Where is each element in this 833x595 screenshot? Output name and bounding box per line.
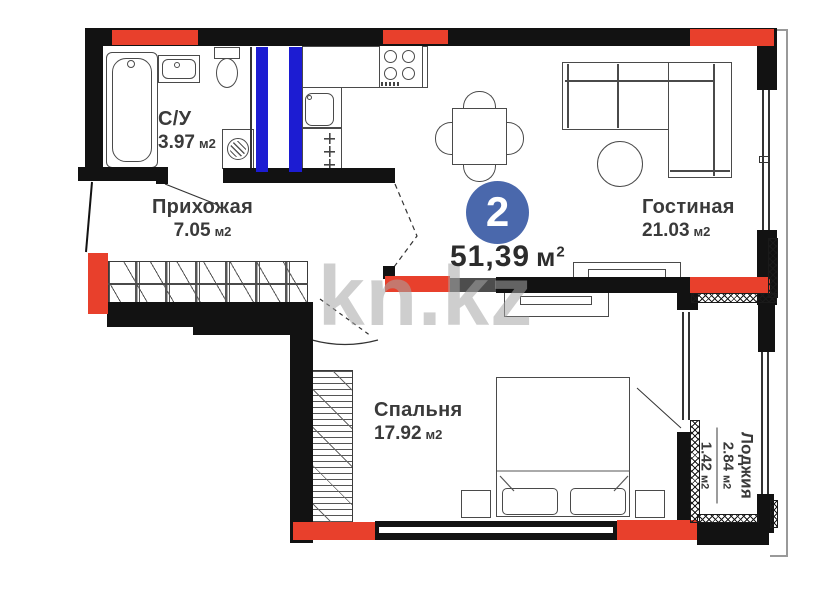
plumbing-riser-2 [289, 47, 302, 172]
hatch-right-bottom [770, 500, 778, 528]
total-area-unit-letter: м [536, 242, 556, 272]
red-accent-bedroom-bottom-right [617, 520, 697, 540]
wall-loggia-right-upper [758, 302, 775, 352]
room-area-reduced: 1.42м2 [698, 400, 715, 532]
total-area-value: 51,39 [450, 240, 530, 273]
floor-plan: kn.kz С/У 3.97м2 Прихожая 7.05м2 Гостина… [0, 0, 833, 595]
red-accent-top-right [690, 29, 774, 46]
room-area: 17.92м2 [374, 423, 463, 444]
total-area-label: 51,39м2 [450, 240, 566, 274]
plumbing-riser-1 [256, 47, 268, 172]
room-area-unit: м2 [199, 136, 216, 151]
total-area-unit-sup: 2 [556, 243, 565, 260]
door-jamb-bathroom [156, 170, 168, 184]
room-area-value: 2.84 [720, 442, 737, 471]
window-bedroom-loggia-line1 [682, 312, 684, 420]
red-accent-loggia-top [690, 277, 770, 293]
room-name: Прихожая [125, 196, 280, 218]
room-area: 7.05м2 [125, 220, 280, 241]
wall-bathroom-kitchen-partition [250, 47, 252, 168]
pointer-line-loggia-door [637, 388, 681, 428]
window-bedroom-bottom [379, 527, 613, 533]
room-label-hallway: Прихожая 7.05м2 [125, 196, 280, 242]
room-area-value: 21.03 [642, 220, 690, 241]
total-area-unit: м2 [536, 242, 566, 272]
wall-left-bathroom [85, 28, 103, 181]
window-living-line2 [768, 90, 770, 230]
red-accent-bedroom-bottom-left [293, 522, 375, 540]
room-name: Спальня [374, 399, 463, 421]
room-area-value: 3.97 [158, 132, 195, 153]
room-area-reduced-value: 1.42 [698, 442, 715, 471]
room-name: Лоджия [737, 400, 757, 532]
room-area-unit: м2 [426, 427, 443, 442]
hatch-right-mid [768, 238, 778, 298]
room-area-unit: м2 [215, 224, 232, 239]
room-label-living: Гостиная 21.03м2 [642, 196, 735, 242]
room-area-unit: м2 [694, 224, 711, 239]
wall-loggia-left-lower [677, 432, 690, 524]
room-area-reduced-unit: м2 [699, 475, 711, 489]
wall-right-top-corner [757, 46, 777, 90]
room-name: С/У [158, 108, 216, 130]
room-count-badge: 2 [466, 181, 529, 244]
room-area: 2.84м2 [717, 428, 737, 504]
room-label-bedroom: Спальня 17.92м2 [374, 399, 463, 445]
room-area: 3.97м2 [158, 132, 216, 153]
window-loggia-line1 [761, 352, 763, 494]
bed-fold-right [614, 476, 628, 491]
hatch-loggia-top [691, 293, 777, 303]
red-accent-hallway-left [88, 253, 108, 314]
room-area-value: 17.92 [374, 423, 422, 444]
window-living-line1 [762, 90, 764, 230]
room-area-unit: м2 [721, 475, 733, 489]
room-area: 21.03м2 [642, 220, 735, 241]
room-label-bathroom: С/У 3.97м2 [158, 108, 216, 154]
window-loggia-line2 [767, 352, 769, 494]
room-area-value: 7.05 [174, 220, 211, 241]
window-bedroom-loggia-line2 [688, 312, 690, 420]
wall-bathroom-bottom [78, 167, 168, 181]
wall-bedroom-left [290, 326, 313, 543]
bed-fold-left [500, 476, 514, 491]
wall-left-diagonal [86, 182, 92, 252]
room-name: Гостиная [642, 196, 735, 218]
wall-kitchen-bottom [223, 168, 395, 183]
room-label-loggia: Лоджия 2.84м2 1.42м2 [698, 400, 757, 532]
red-accent-top-bathroom [112, 30, 198, 45]
red-accent-top-kitchen [383, 30, 448, 44]
